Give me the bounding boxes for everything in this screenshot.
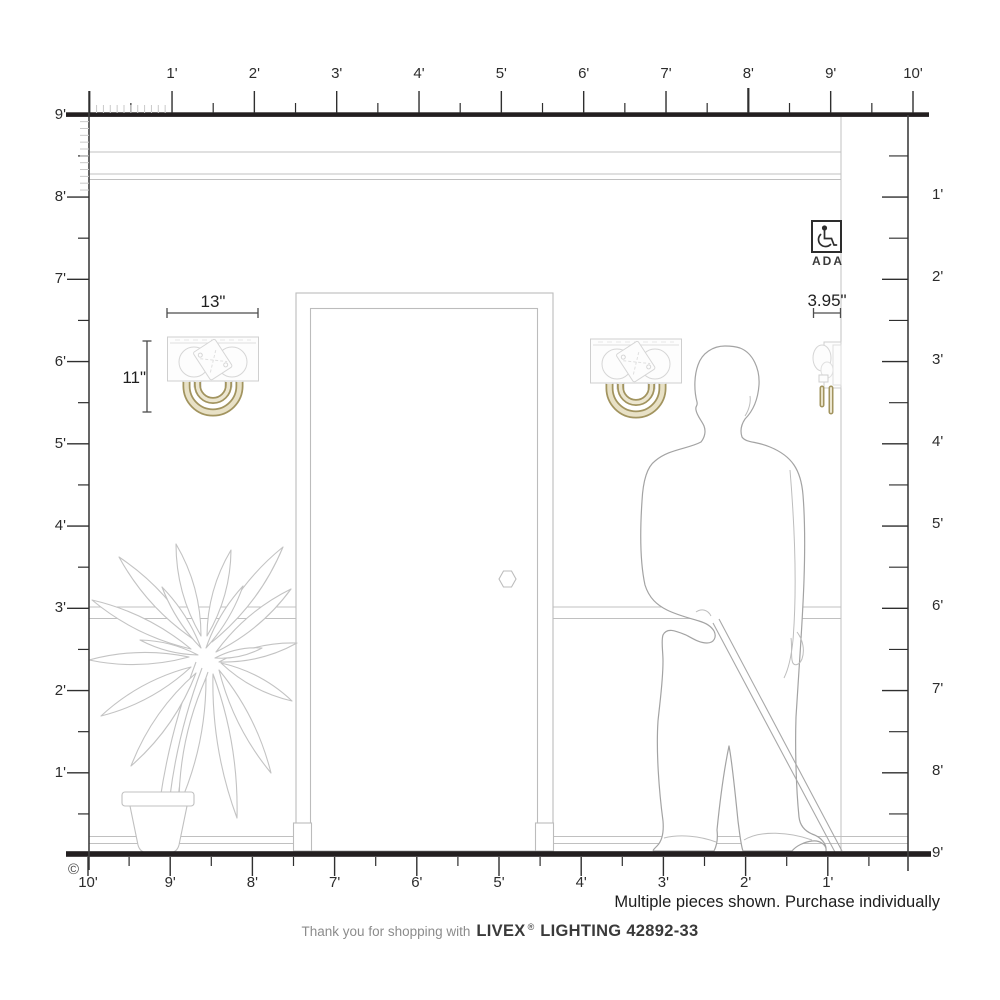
bottom-ruler-label-4': 4' xyxy=(564,875,598,890)
top-ruler-label-6': 6' xyxy=(567,66,601,81)
wall-sconce-middle xyxy=(591,339,682,415)
top-ruler-label-10': 10' xyxy=(896,66,930,81)
person-silhouette xyxy=(641,346,842,854)
right-ruler-label-8': 8' xyxy=(932,763,943,778)
left-ruler-label-4': 4' xyxy=(30,518,66,533)
ada-sign xyxy=(812,221,841,252)
registered-mark: ® xyxy=(528,922,535,932)
door xyxy=(294,293,554,851)
fixture-height-label: 11" xyxy=(110,368,146,388)
bottom-ruler-label-3': 3' xyxy=(646,875,680,890)
door-plinth xyxy=(294,823,312,851)
floor-ruler-line xyxy=(66,851,931,857)
right-ruler-label-1': 1' xyxy=(932,187,943,202)
left-ruler-label-3': 3' xyxy=(30,600,66,615)
right-ruler-label-5': 5' xyxy=(932,516,943,531)
fixture-width-label: 13" xyxy=(194,292,232,312)
left-ruler-label-1': 1' xyxy=(30,765,66,780)
top-ruler-label-8': 8' xyxy=(731,66,765,81)
right-ruler-label-7': 7' xyxy=(932,681,943,696)
purchase-note: Multiple pieces shown. Purchase individu… xyxy=(614,893,940,912)
footer-note: Thank you for shopping with LIVEX ® LIGH… xyxy=(0,922,1000,941)
top-ruler-label-5': 5' xyxy=(484,66,518,81)
product-dimension-diagram: 1'2'3'4'5'6'7'8'9'10'9'8'7'6'5'4'3'2'1'1… xyxy=(0,0,1000,1000)
left-ruler-label-7': 7' xyxy=(30,271,66,286)
top-ruler-label-2': 2' xyxy=(237,66,271,81)
top-ruler-label-9': 9' xyxy=(814,66,848,81)
top-ruler-label-1': 1' xyxy=(155,66,189,81)
top-ruler-label-7': 7' xyxy=(649,66,683,81)
bottom-ruler-label-1': 1' xyxy=(811,875,845,890)
top-ruler-label-4': 4' xyxy=(402,66,436,81)
elevation-drawing xyxy=(0,0,1000,1000)
door-plinth xyxy=(536,823,554,851)
footer-brand: LIVEX xyxy=(476,922,525,941)
bottom-ruler-label-2': 2' xyxy=(729,875,763,890)
footer-model-number: LIGHTING 42892-33 xyxy=(540,922,698,941)
fixture-depth-label: 3.95" xyxy=(806,291,848,311)
bottom-ruler-label-7': 7' xyxy=(318,875,352,890)
door-knob xyxy=(499,571,516,587)
right-ruler-label-4': 4' xyxy=(932,434,943,449)
top-ruler-label-3': 3' xyxy=(320,66,354,81)
left-ruler-label-6': 6' xyxy=(30,354,66,369)
plant-leaf xyxy=(89,652,189,664)
ada-label: ADA xyxy=(812,254,841,268)
wall-sconce-left xyxy=(168,337,259,413)
bottom-ruler-label-5': 5' xyxy=(482,875,516,890)
top-ruler-line xyxy=(66,112,929,117)
left-ruler-label-2': 2' xyxy=(30,683,66,698)
left-ruler-label-9': 9' xyxy=(30,107,66,122)
right-ruler-label-2': 2' xyxy=(932,269,943,284)
potted-plant xyxy=(89,544,297,818)
right-ruler-label-3': 3' xyxy=(932,352,943,367)
bottom-ruler-label-6': 6' xyxy=(400,875,434,890)
bottom-ruler-label-8': 8' xyxy=(235,875,269,890)
copyright-symbol: © xyxy=(68,861,79,878)
footer-thanks-text: Thank you for shopping with xyxy=(302,924,471,939)
bottom-ruler-label-9': 9' xyxy=(153,875,187,890)
ada-sign-frame xyxy=(812,221,841,252)
left-ruler-label-5': 5' xyxy=(30,436,66,451)
right-ruler-label-9': 9' xyxy=(932,845,943,860)
right-ruler-label-6': 6' xyxy=(932,598,943,613)
wall-sconce-side-profile xyxy=(813,342,841,412)
left-ruler-label-8': 8' xyxy=(30,189,66,204)
